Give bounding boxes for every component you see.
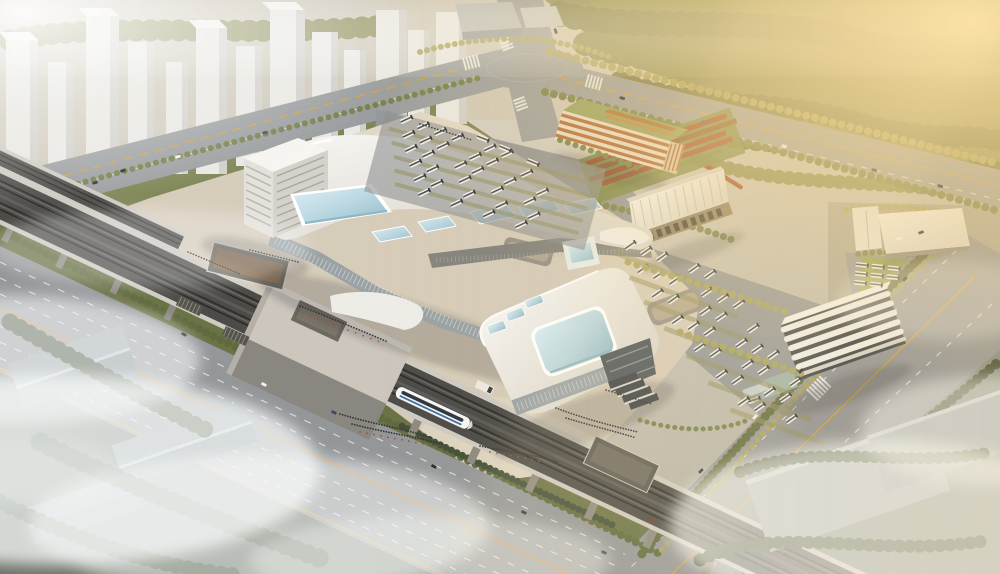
scene-canvas: Aerial rendering of an intermodal transi… [0, 0, 1000, 574]
warm-tint [0, 0, 1000, 574]
architectural-aerial-rendering: Aerial rendering of an intermodal transi… [0, 0, 1000, 574]
atmosphere [0, 0, 1000, 574]
